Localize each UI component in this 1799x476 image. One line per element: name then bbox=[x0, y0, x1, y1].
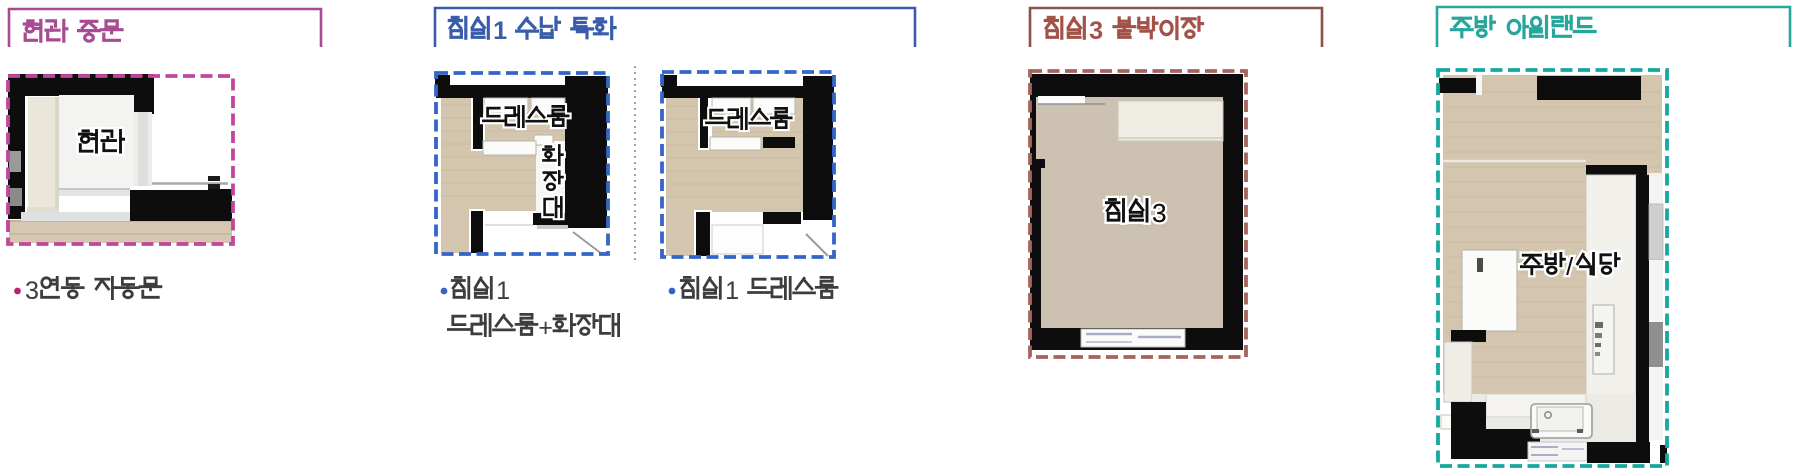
svg-text:1: 1 bbox=[725, 277, 739, 305]
svg-text:/: / bbox=[1566, 253, 1573, 281]
svg-text:3: 3 bbox=[25, 277, 39, 305]
svg-text:3: 3 bbox=[1089, 17, 1103, 45]
svg-text:+: + bbox=[538, 314, 553, 342]
svg-text:1: 1 bbox=[493, 17, 507, 45]
svg-text:3: 3 bbox=[1152, 198, 1167, 228]
svg-text:1: 1 bbox=[496, 277, 510, 305]
